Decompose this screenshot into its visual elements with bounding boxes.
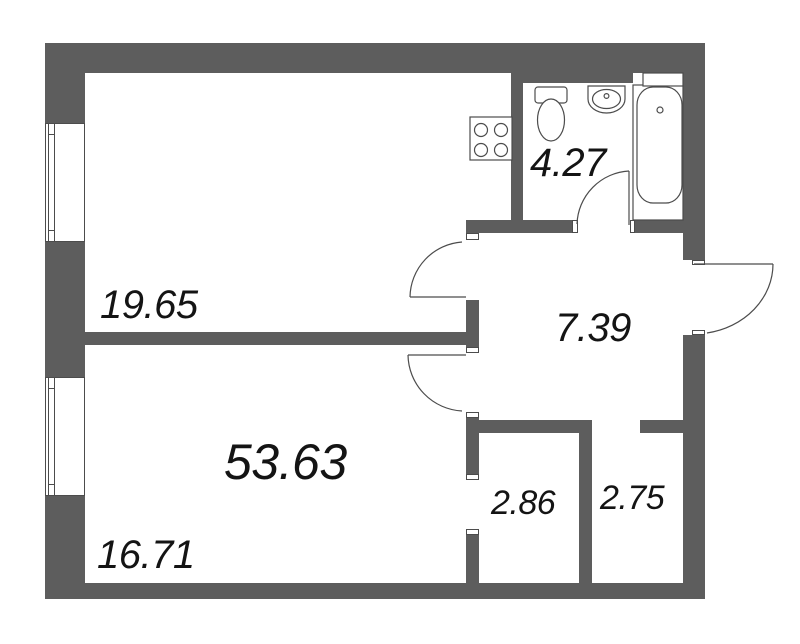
sink-icon xyxy=(588,86,625,113)
door-arc-room-bottom-left xyxy=(408,355,466,411)
entrance-door-arc xyxy=(694,264,773,333)
toilet-icon xyxy=(535,87,567,141)
stove-icon xyxy=(470,117,512,160)
area-label-room-bottom-left: 16.71 xyxy=(97,534,195,576)
bathtub-icon xyxy=(633,73,683,220)
total-area-label: 53.63 xyxy=(224,436,347,489)
door-arc-room-top-left xyxy=(410,242,466,297)
area-label-bathroom: 4.27 xyxy=(530,142,606,184)
floor-plan: 19.65 16.71 53.63 4.27 7.39 2.86 2.75 xyxy=(0,0,800,644)
area-label-room-top-left: 19.65 xyxy=(100,284,198,326)
area-label-hallway: 7.39 xyxy=(555,307,631,349)
area-label-closet-right: 2.75 xyxy=(600,481,664,517)
area-label-closet-left: 2.86 xyxy=(491,486,555,522)
